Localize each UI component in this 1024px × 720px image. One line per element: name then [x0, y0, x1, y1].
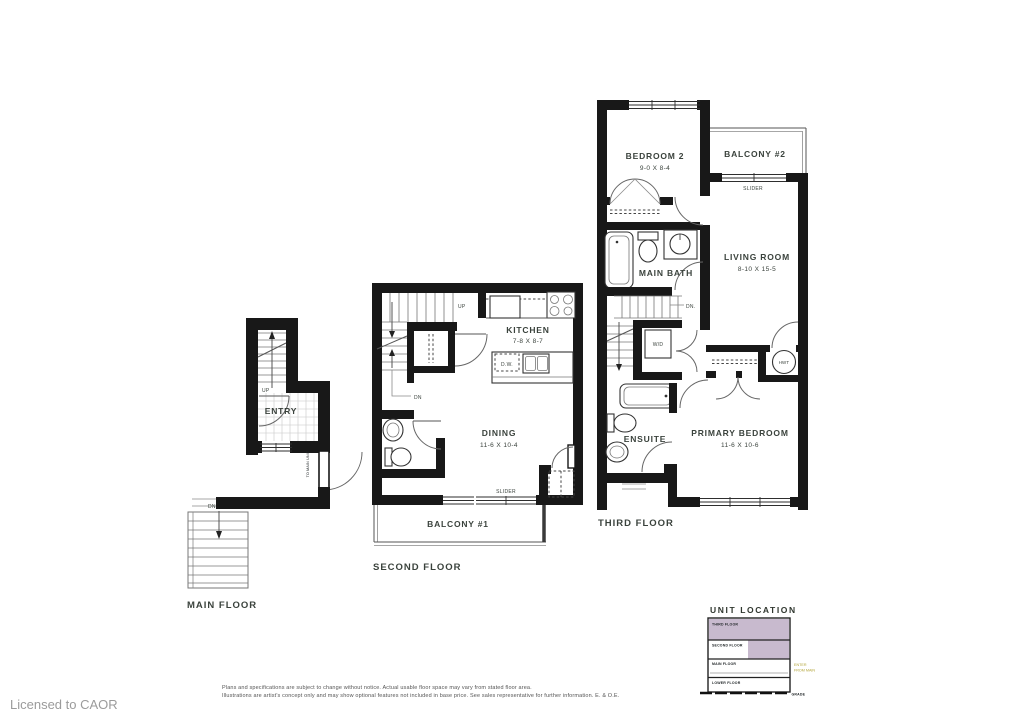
primary-bedroom-label: PRIMARY BEDROOM [691, 428, 788, 438]
main-dn-label: DN [208, 504, 216, 510]
second-floor-stairs [377, 293, 453, 396]
second-dn-label: DN [414, 395, 422, 401]
unit-location-legend: UNIT LOCATION THIRD FLOOR SECOND FLOOR M… [700, 605, 815, 697]
ensuite-label: ENSUITE [624, 434, 666, 444]
legend-main-floor: MAIN FLOOR [712, 662, 736, 666]
main-floor-title: MAIN FLOOR [187, 600, 257, 611]
third-floor-title: THIRD FLOOR [598, 518, 674, 529]
legend-second-floor: SECOND FLOOR [712, 644, 743, 648]
hwt-label: HWT [779, 360, 790, 365]
living-room-label: LIVING ROOM [724, 252, 790, 262]
closet-door-leaf [568, 445, 575, 468]
bedroom2-label: BEDROOM 2 [626, 151, 685, 161]
disclaimer-line1: Plans and specifications are subject to … [222, 685, 532, 691]
second-up-label: UP [458, 304, 466, 310]
dining-label: DINING [482, 428, 517, 438]
second-floor-highlight [748, 641, 789, 659]
dishwasher-label: D.W. [501, 362, 513, 368]
entry-label: ENTRY [265, 406, 298, 416]
disclaimer-line2: Illustrations are artist's concept only … [222, 693, 620, 699]
kitchen-label: KITCHEN [506, 325, 549, 335]
third-dn-label: DN. [686, 304, 696, 310]
main-bath-fixtures [605, 230, 697, 288]
primary-bedroom-dims: 11-6 X 10-6 [721, 442, 759, 449]
main-bath-label: MAIN BATH [639, 268, 693, 278]
main-up-label: UP [262, 388, 270, 394]
living-room-dims: 8-10 X 15-5 [738, 266, 776, 273]
second-slider-label: SLIDER [496, 489, 516, 495]
outdoor-stairs [188, 511, 248, 588]
third-slider-label: SLIDER [743, 186, 763, 192]
legend-lower-floor: LOWER FLOOR [712, 681, 741, 685]
ensuite-fixtures [606, 384, 675, 462]
dining-dims: 11-6 X 10-4 [480, 442, 518, 449]
entry-tile-floor [258, 393, 318, 441]
to-main-unit-note: TO MAIN UNIT [306, 450, 310, 477]
grade-label: GRADE [792, 693, 806, 697]
bedroom2-dims: 9-0 X 8-4 [640, 165, 670, 172]
footer: Plans and specifications are subject to … [10, 685, 620, 712]
legend-note-line1: ENTER [794, 663, 807, 667]
unit-location-title: UNIT LOCATION [710, 605, 797, 615]
balcony-1-label: BALCONY #1 [427, 519, 489, 529]
license-watermark: Licensed to CAOR [10, 697, 118, 712]
entry-door-leaf [319, 451, 329, 489]
floor-plan-sheet: DN UP ENTRY TO MAIN UNIT MAIN FLOOR [0, 0, 1024, 720]
second-floor-plan: UP DN KITCHEN 7-8 X 8-7 D.W. DINING 11-6… [372, 283, 583, 573]
kitchen-dims: 7-8 X 8-7 [513, 338, 543, 345]
wd-label: W/D [653, 342, 664, 348]
entry-stairs [258, 331, 286, 388]
legend-third-floor: THIRD FLOOR [712, 623, 738, 627]
main-floor-plan: DN UP ENTRY TO MAIN UNIT MAIN FLOOR [187, 318, 362, 611]
third-floor-plan: BEDROOM 2 9-0 X 8-4 BALCONY #2 SLIDER LI… [597, 100, 808, 529]
powder-room-fixtures [383, 419, 411, 466]
floor-plan-canvas: DN UP ENTRY TO MAIN UNIT MAIN FLOOR [0, 0, 1024, 720]
balcony-2-label: BALCONY #2 [724, 149, 786, 159]
second-floor-title: SECOND FLOOR [373, 562, 462, 573]
legend-note-line2: FROM MAIN [794, 669, 815, 673]
